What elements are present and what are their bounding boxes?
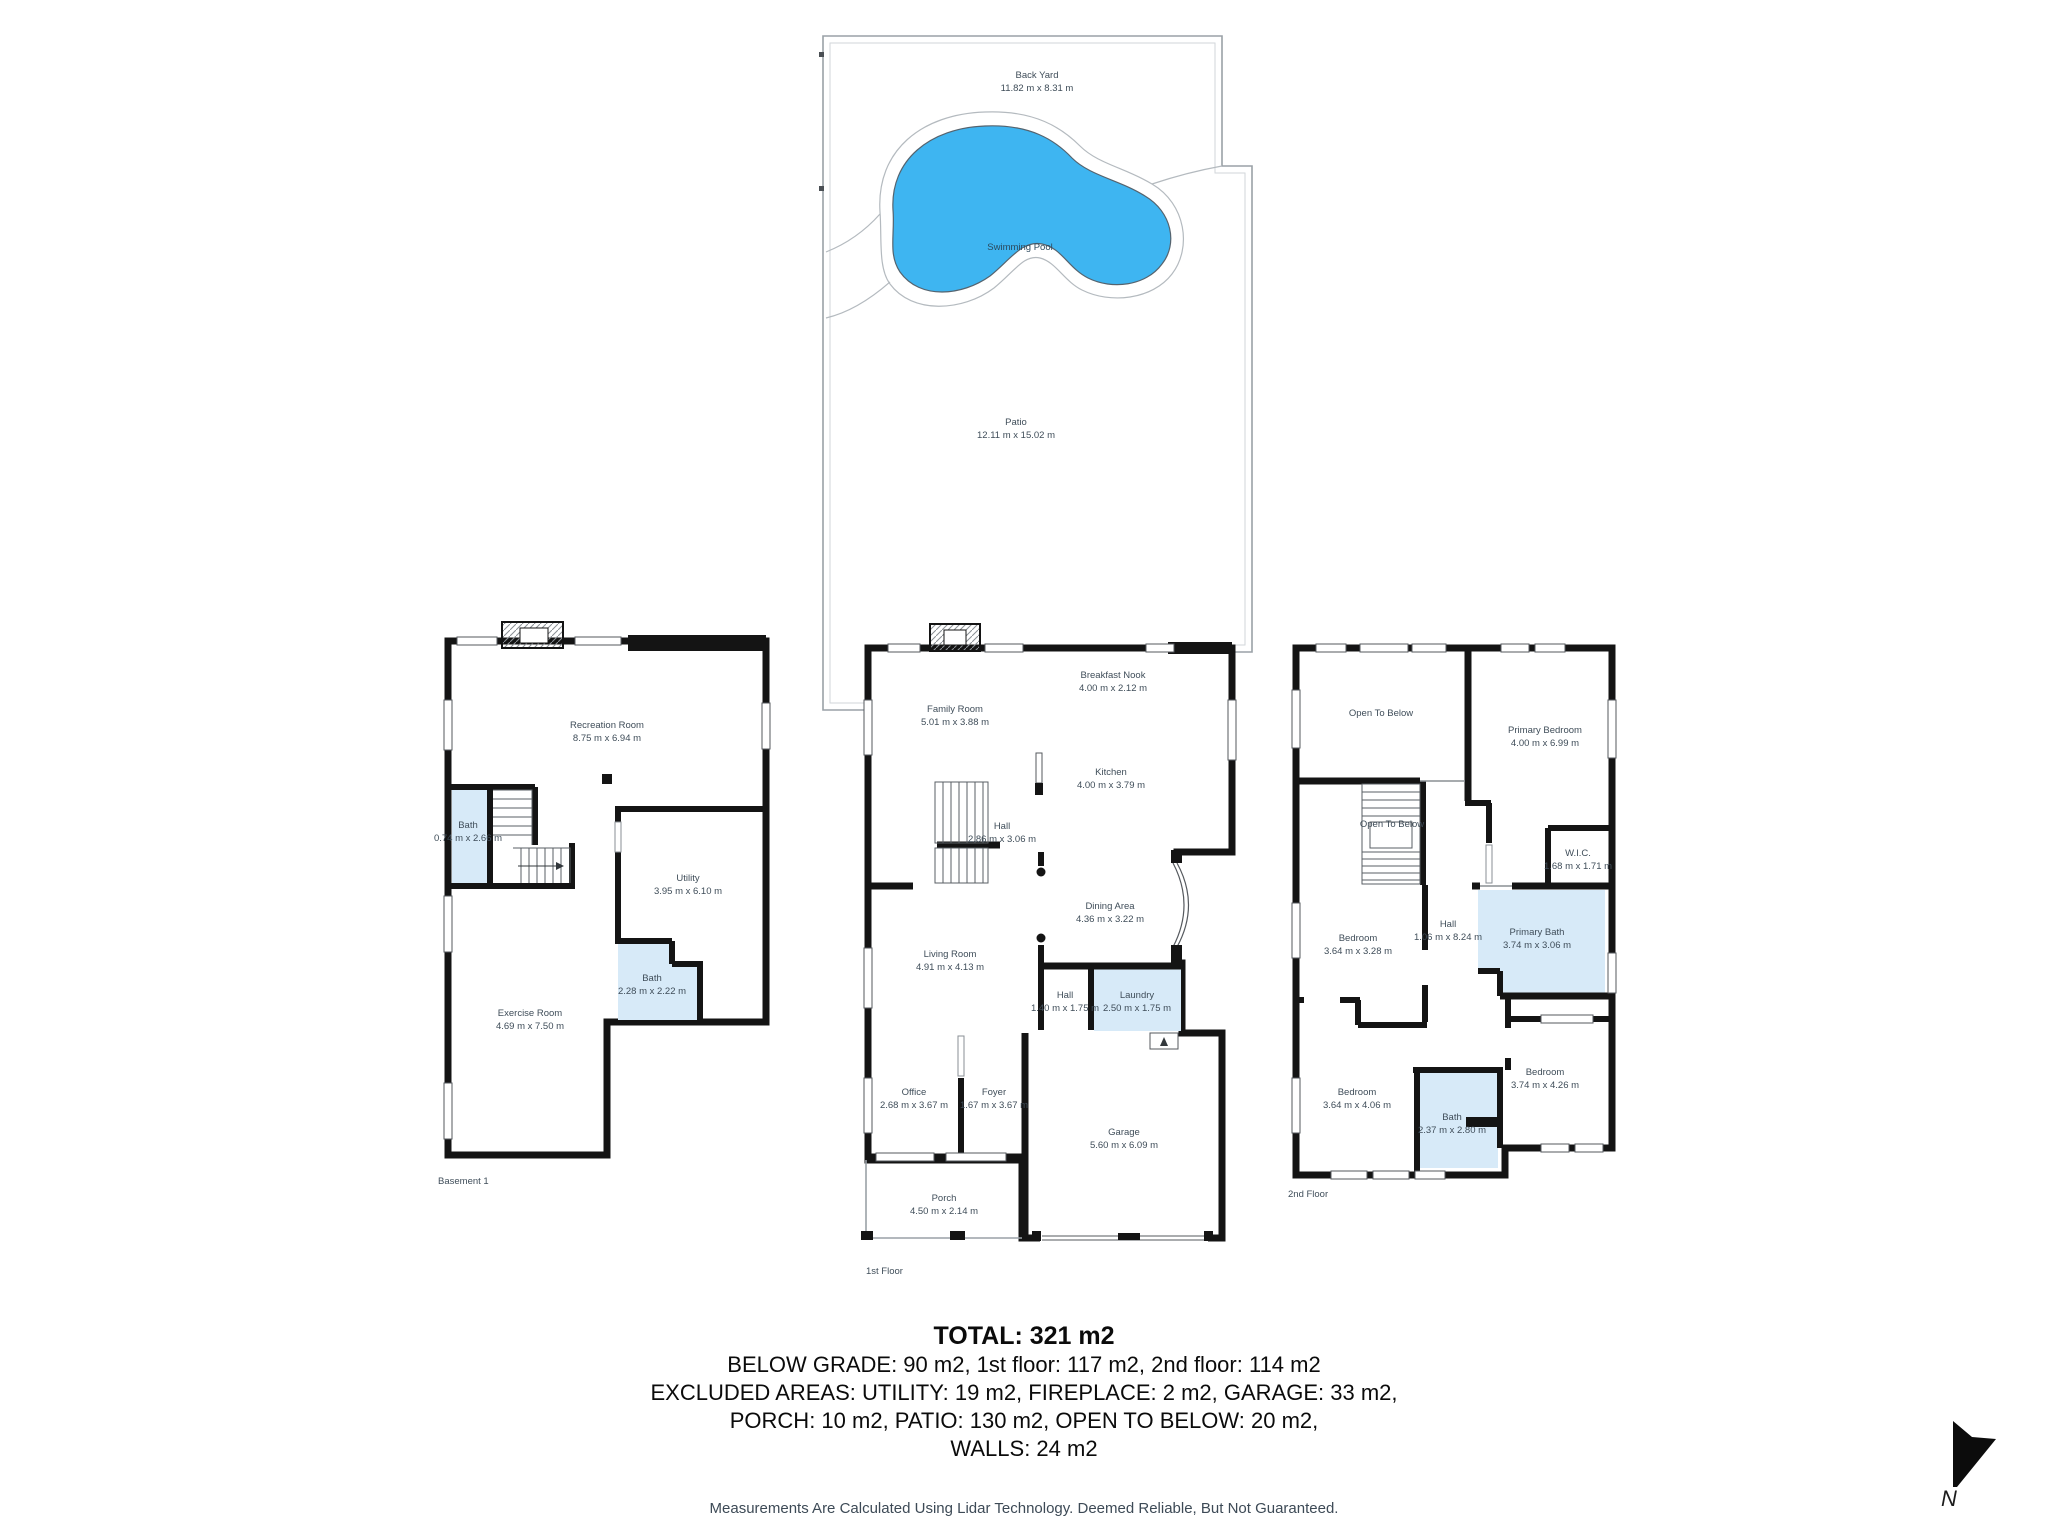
room-label-breakfast-nook: Breakfast Nook 4.00 m x 2.12 m (1079, 669, 1147, 695)
room-name: Bedroom (1324, 932, 1392, 945)
room-dims: 4.91 m x 4.13 m (916, 961, 984, 974)
room-dims: 2.86 m x 3.06 m (968, 833, 1036, 846)
room-label-porch: Porch 4.50 m x 2.14 m (910, 1192, 978, 1218)
summary-line-3: PORCH: 10 m2, PATIO: 130 m2, OPEN TO BEL… (0, 1408, 2048, 1434)
room-name: W.I.C. (1544, 847, 1612, 860)
room-dims: 3.74 m x 4.26 m (1511, 1079, 1579, 1092)
room-name: Primary Bath (1503, 926, 1571, 939)
room-label-foyer: Foyer 1.67 m x 3.67 m (960, 1086, 1028, 1112)
room-label-primary-bedroom: Primary Bedroom 4.00 m x 6.99 m (1508, 724, 1582, 750)
north-compass: N (1941, 1421, 1996, 1511)
floorplan-page: { "yard": { "back_yard_label": "Back Yar… (0, 0, 2048, 1536)
room-name: Laundry (1103, 989, 1171, 1002)
room-name: Breakfast Nook (1079, 669, 1147, 682)
room-dims: 2.68 m x 3.67 m (880, 1099, 948, 1112)
patio-label: Patio 12.11 m x 15.02 m (977, 416, 1055, 442)
room-name: Hall (968, 820, 1036, 833)
room-dims: 3.95 m x 6.10 m (654, 885, 722, 898)
swimming-pool-label: Swimming Pool (987, 241, 1052, 254)
area-name: Patio (977, 416, 1055, 429)
room-label-bedroom-2: Bedroom 3.64 m x 4.06 m (1323, 1086, 1391, 1112)
room-label-bedroom-1: Bedroom 3.64 m x 3.28 m (1324, 932, 1392, 958)
floor-title-second: 2nd Floor (1288, 1189, 1328, 1200)
room-label-hall-main: Hall 2.86 m x 3.06 m (968, 820, 1036, 846)
room-dims: 3.74 m x 3.06 m (1503, 939, 1571, 952)
room-name: Garage (1090, 1126, 1158, 1139)
room-label-basement-bath-1: Bath 0.74 m x 2.66 m (434, 819, 502, 845)
room-name: Hall (1031, 989, 1099, 1002)
room-dims: 4.50 m x 2.14 m (910, 1205, 978, 1218)
room-name: Office (880, 1086, 948, 1099)
backyard-outline (819, 36, 1252, 710)
room-label-open-to-below-large: Open To Below (1349, 707, 1413, 720)
room-name: Foyer (960, 1086, 1028, 1099)
area-dims: 11.82 m x 8.31 m (1001, 82, 1074, 95)
summary-total: TOTAL: 321 m2 (0, 1322, 2048, 1351)
area-name: Back Yard (1001, 69, 1074, 82)
room-dims: 8.75 m x 6.94 m (570, 732, 644, 745)
back-yard-label: Back Yard 11.82 m x 8.31 m (1001, 69, 1074, 95)
room-label-hall-small: Hall 1.40 m x 1.75 m (1031, 989, 1099, 1015)
swimming-pool-shape (893, 126, 1171, 292)
room-dims: 5.60 m x 6.09 m (1090, 1139, 1158, 1152)
room-label-family-room: Family Room 5.01 m x 3.88 m (921, 703, 989, 729)
summary-line-1: BELOW GRADE: 90 m2, 1st floor: 117 m2, 2… (0, 1352, 2048, 1378)
room-label-utility: Utility 3.95 m x 6.10 m (654, 872, 722, 898)
room-label-office: Office 2.68 m x 3.67 m (880, 1086, 948, 1112)
room-dims: 3.64 m x 3.28 m (1324, 945, 1392, 958)
room-dims: 4.00 m x 2.12 m (1079, 682, 1147, 695)
room-label-open-to-below-small: Open To Below (1360, 818, 1424, 831)
room-dims: 1.67 m x 3.67 m (960, 1099, 1028, 1112)
room-name: Bedroom (1323, 1086, 1391, 1099)
summary-line-2: EXCLUDED AREAS: UTILITY: 19 m2, FIREPLAC… (0, 1380, 2048, 1406)
room-dims: 1.68 m x 1.71 m (1544, 860, 1612, 873)
room-label-laundry: Laundry 2.50 m x 1.75 m (1103, 989, 1171, 1015)
room-label-kitchen: Kitchen 4.00 m x 3.79 m (1077, 766, 1145, 792)
room-label-primary-bath: Primary Bath 3.74 m x 3.06 m (1503, 926, 1571, 952)
room-name: Open To Below (1349, 707, 1413, 720)
room-label-bath-second: Bath 2.37 m x 2.80 m (1418, 1111, 1486, 1137)
room-dims: 1.06 m x 8.24 m (1414, 931, 1482, 944)
area-dims: 12.11 m x 15.02 m (977, 429, 1055, 442)
floorplan-graphics: N (0, 0, 2048, 1536)
disclaimer-text: Measurements Are Calculated Using Lidar … (0, 1500, 2048, 1517)
room-dims: 5.01 m x 3.88 m (921, 716, 989, 729)
floor-title-basement: Basement 1 (438, 1176, 489, 1187)
room-name: Kitchen (1077, 766, 1145, 779)
summary-line-4: WALLS: 24 m2 (0, 1436, 2048, 1462)
room-dims: 4.00 m x 6.99 m (1508, 737, 1582, 750)
room-label-exercise-room: Exercise Room 4.69 m x 7.50 m (496, 1007, 564, 1033)
room-label-recreation-room: Recreation Room 8.75 m x 6.94 m (570, 719, 644, 745)
room-name: Bath (618, 972, 686, 985)
room-label-dining-area: Dining Area 4.36 m x 3.22 m (1076, 900, 1144, 926)
room-name: Bath (434, 819, 502, 832)
floor-plan-first (861, 624, 1236, 1243)
room-label-living-room: Living Room 4.91 m x 4.13 m (916, 948, 984, 974)
room-name: Bedroom (1511, 1066, 1579, 1079)
room-name: Dining Area (1076, 900, 1144, 913)
room-name: Hall (1414, 918, 1482, 931)
room-name: Primary Bedroom (1508, 724, 1582, 737)
room-dims: 1.40 m x 1.75 m (1031, 1002, 1099, 1015)
room-name: Recreation Room (570, 719, 644, 732)
room-name: Porch (910, 1192, 978, 1205)
room-name: Exercise Room (496, 1007, 564, 1020)
room-dims: 2.50 m x 1.75 m (1103, 1002, 1171, 1015)
room-label-wic: W.I.C. 1.68 m x 1.71 m (1544, 847, 1612, 873)
room-name: Utility (654, 872, 722, 885)
room-dims: 4.36 m x 3.22 m (1076, 913, 1144, 926)
room-label-hall-second: Hall 1.06 m x 8.24 m (1414, 918, 1482, 944)
room-dims: 4.00 m x 3.79 m (1077, 779, 1145, 792)
room-label-garage: Garage 5.60 m x 6.09 m (1090, 1126, 1158, 1152)
room-label-bedroom-3: Bedroom 3.74 m x 4.26 m (1511, 1066, 1579, 1092)
room-dims: 0.74 m x 2.66 m (434, 832, 502, 845)
room-name: Family Room (921, 703, 989, 716)
room-dims: 4.69 m x 7.50 m (496, 1020, 564, 1033)
room-dims: 2.28 m x 2.22 m (618, 985, 686, 998)
area-name: Swimming Pool (987, 241, 1052, 254)
room-label-basement-bath-2: Bath 2.28 m x 2.22 m (618, 972, 686, 998)
room-dims: 2.37 m x 2.80 m (1418, 1124, 1486, 1137)
room-name: Bath (1418, 1111, 1486, 1124)
room-dims: 3.64 m x 4.06 m (1323, 1099, 1391, 1112)
room-name: Living Room (916, 948, 984, 961)
room-name: Open To Below (1360, 818, 1424, 831)
floor-title-first: 1st Floor (866, 1266, 903, 1277)
